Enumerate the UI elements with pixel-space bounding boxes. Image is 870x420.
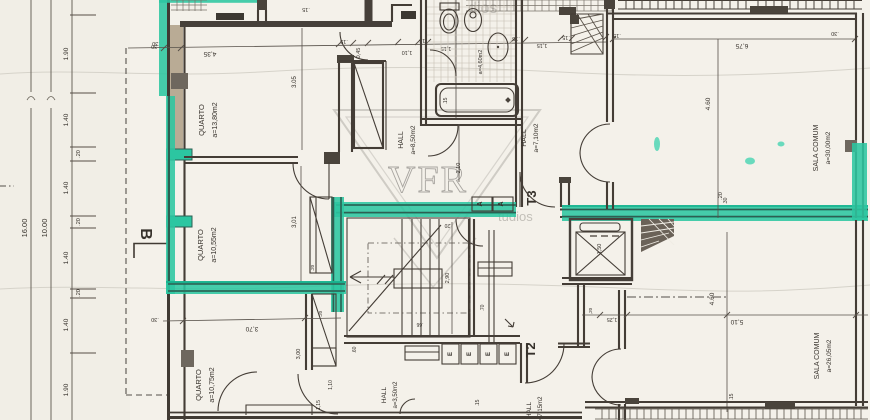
svg-text:1,25: 1,25 <box>607 316 618 322</box>
svg-text:.60: .60 <box>352 346 358 353</box>
svg-text:HALL: HALL <box>521 129 528 147</box>
svg-text:.30: .30 <box>151 316 159 322</box>
svg-text:T2: T2 <box>523 342 538 357</box>
svg-text:QUARTO: QUARTO <box>196 229 205 261</box>
svg-text:QUARTO: QUARTO <box>197 104 206 136</box>
svg-text:.70: .70 <box>480 304 486 311</box>
svg-text:1.90: 1.90 <box>63 47 70 60</box>
svg-text:A: A <box>498 201 505 206</box>
svg-text:3,01: 3,01 <box>292 216 298 228</box>
svg-text:3.05: 3.05 <box>292 76 298 88</box>
svg-text:2,90: 2,90 <box>445 273 451 284</box>
svg-text:,20: ,20 <box>588 307 593 314</box>
svg-text:1,10: 1,10 <box>402 49 413 55</box>
svg-text:.20: .20 <box>76 150 82 158</box>
svg-text:.20: .20 <box>76 218 82 226</box>
svg-text:E: E <box>486 352 492 356</box>
svg-text:4.60: 4.60 <box>709 292 716 305</box>
svg-text:a=7,10m2: a=7,10m2 <box>533 123 540 152</box>
svg-text:.30: .30 <box>723 197 729 204</box>
svg-text:.15: .15 <box>562 34 570 40</box>
svg-text:1,15: 1,15 <box>441 45 452 51</box>
svg-text:a=26,05m2: a=26,05m2 <box>826 339 833 372</box>
svg-text:1,50: 1,50 <box>597 244 603 255</box>
svg-text:1.90: 1.90 <box>63 383 70 396</box>
svg-text:6,75: 6,75 <box>735 42 748 49</box>
svg-text:16.00: 16.00 <box>20 219 29 238</box>
svg-text:SALA COMUM: SALA COMUM <box>814 332 821 379</box>
svg-text:a=13,80m2: a=13,80m2 <box>212 102 219 137</box>
svg-text:10.00: 10.00 <box>40 219 49 238</box>
svg-text:a=8,50m2: a=8,50m2 <box>410 125 417 154</box>
svg-text:HALL: HALL <box>381 386 388 403</box>
svg-text:.15: .15 <box>302 6 310 12</box>
svg-text:0,45: 0,45 <box>356 48 362 59</box>
svg-text:E: E <box>467 352 473 356</box>
svg-text:4.60: 4.60 <box>705 97 712 110</box>
svg-text:B: B <box>137 228 154 240</box>
svg-text:E: E <box>448 352 454 356</box>
svg-text:1.40: 1.40 <box>63 181 70 194</box>
svg-text:.15: .15 <box>340 38 348 44</box>
svg-text:.15: .15 <box>729 393 735 400</box>
svg-text:1.40: 1.40 <box>63 251 70 264</box>
svg-text:3,00: 3,00 <box>296 349 302 360</box>
svg-text:1.40: 1.40 <box>63 113 70 126</box>
svg-text:.30: .30 <box>831 30 839 36</box>
svg-text:a=10,75m2: a=10,75m2 <box>209 367 216 402</box>
svg-text:5,10: 5,10 <box>730 318 743 325</box>
svg-text:a=4,60m2: a=4,60m2 <box>478 50 484 75</box>
svg-text:.20: .20 <box>310 264 315 271</box>
svg-text:2,10: 2,10 <box>456 163 462 174</box>
svg-text:.15: .15 <box>475 399 481 406</box>
svg-text:1,10: 1,10 <box>328 380 334 390</box>
svg-text:a=3,50m2: a=3,50m2 <box>393 381 399 409</box>
svg-text:3,70: 3,70 <box>245 325 258 332</box>
svg-text:a=30,00m2: a=30,00m2 <box>825 131 832 164</box>
svg-text:HALL: HALL <box>398 131 405 149</box>
svg-text:.15: .15 <box>443 97 449 104</box>
svg-text:.30: .30 <box>151 43 159 49</box>
svg-text:SALA COMUM: SALA COMUM <box>813 124 820 171</box>
svg-text:HALL: HALL <box>526 401 533 418</box>
svg-text:.20: .20 <box>76 289 82 297</box>
svg-text:1,15: 1,15 <box>537 42 548 48</box>
svg-text:.66: .66 <box>416 321 423 327</box>
svg-text:1.40: 1.40 <box>63 318 70 331</box>
svg-text:.20: .20 <box>444 222 451 228</box>
svg-text:A: A <box>477 201 484 206</box>
svg-text:QUARTO: QUARTO <box>194 369 203 401</box>
svg-text:.20: .20 <box>318 310 323 317</box>
svg-text:4,35: 4,35 <box>203 50 216 57</box>
svg-text:1,15: 1,15 <box>316 400 322 410</box>
svg-text:E: E <box>505 352 511 356</box>
svg-text:a=10,55m2: a=10,55m2 <box>211 227 218 262</box>
